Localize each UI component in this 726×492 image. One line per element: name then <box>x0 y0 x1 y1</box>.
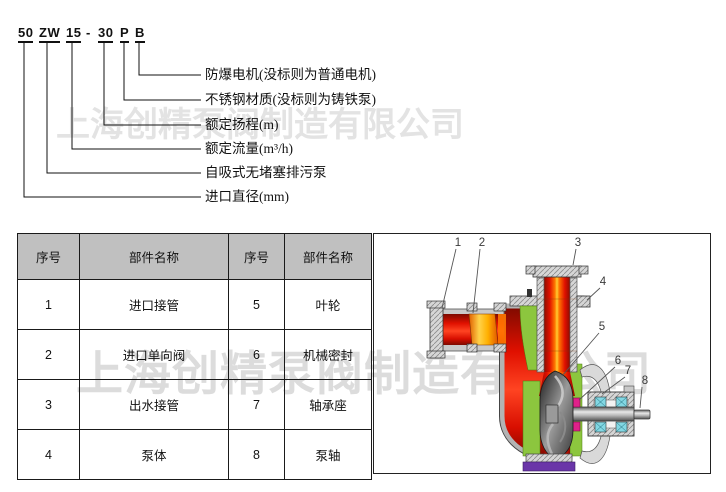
model-code-segment: ZW <box>39 25 60 43</box>
parts-table-cell: 出水接管 <box>80 380 229 430</box>
parts-table-cell: 轴承座 <box>285 380 372 430</box>
model-code-segment: P <box>120 25 129 43</box>
model-code-callout-label: 自吸式无堵塞排污泵 <box>205 165 327 181</box>
diagram-callout: 3 <box>575 237 581 249</box>
parts-table-header-cell: 部件名称 <box>285 234 372 280</box>
model-code-segment: 30 <box>98 25 113 43</box>
inlet-flange <box>430 302 443 358</box>
parts-table-cell: 进口单向阀 <box>80 330 229 380</box>
parts-table-cell: 5 <box>229 280 285 330</box>
pump-diagram: 1 2 3 4 5 6 7 8 <box>373 233 711 474</box>
model-code-segment: 50 <box>18 25 33 43</box>
model-code-segment: B <box>135 25 145 43</box>
parts-table-cell: 泵轴 <box>285 430 372 480</box>
diagram-callout: 7 <box>625 365 631 377</box>
model-code-callout-label: 不锈钢材质(没标则为铸铁泵) <box>205 92 376 108</box>
parts-table-header-row: 序号 部件名称 序号 部件名称 <box>18 234 372 280</box>
parts-table-cell: 7 <box>229 380 285 430</box>
check-valve <box>469 314 498 345</box>
model-code-callout-label: 进口直径(mm) <box>205 189 289 205</box>
parts-table-cell: 3 <box>18 380 80 430</box>
inlet-pipe <box>427 301 506 358</box>
parts-table-cell: 6 <box>229 330 285 380</box>
parts-table-header-cell: 序号 <box>18 234 80 280</box>
table-row: 3 出水接管 7 轴承座 <box>18 380 372 430</box>
diagram-callout: 5 <box>599 321 605 333</box>
discharge-flange <box>533 266 581 277</box>
model-code-callout-label: 额定流量(m³/h) <box>205 141 293 157</box>
parts-table-cell: 泵体 <box>80 430 229 480</box>
model-code-callout-label: 防爆电机(没标则为普通电机) <box>205 67 376 83</box>
parts-table-cell: 2 <box>18 330 80 380</box>
parts-table-cell: 4 <box>18 430 80 480</box>
diagram-callout: 2 <box>479 237 485 249</box>
parts-table-cell: 进口接管 <box>80 280 229 330</box>
model-code-segment: 15 <box>66 25 81 43</box>
base-plate <box>523 454 575 471</box>
page: 上海创精泵阀制造有限公司 上海创精泵阀制造有限公司 50 ZW 15 - 30 … <box>0 0 726 492</box>
parts-table-cell: 叶轮 <box>285 280 372 330</box>
diagram-callout: 8 <box>642 375 648 387</box>
pump-cross-section: 1 2 3 4 5 6 7 8 <box>374 234 709 472</box>
table-row: 2 进口单向阀 6 机械密封 <box>18 330 372 380</box>
parts-table-cell: 1 <box>18 280 80 330</box>
diagram-callout: 1 <box>455 237 461 249</box>
table-row: 1 进口接管 5 叶轮 <box>18 280 372 330</box>
parts-table-header-cell: 序号 <box>229 234 285 280</box>
diagram-callout: 4 <box>600 276 607 288</box>
parts-table-cell: 8 <box>229 430 285 480</box>
impeller <box>540 371 573 459</box>
parts-table-header-cell: 部件名称 <box>80 234 229 280</box>
casing-lug <box>577 296 590 307</box>
model-code-separator: - <box>86 25 91 41</box>
diagram-callout: 6 <box>615 355 621 367</box>
table-row: 4 泵体 8 泵轴 <box>18 430 372 480</box>
parts-table: 序号 部件名称 序号 部件名称 1 进口接管 5 叶轮 2 进口单向阀 6 机械… <box>17 233 372 480</box>
bolt <box>527 289 532 297</box>
model-code-callout-label: 额定扬程(m) <box>205 117 279 133</box>
parts-table-cell: 机械密封 <box>285 330 372 380</box>
